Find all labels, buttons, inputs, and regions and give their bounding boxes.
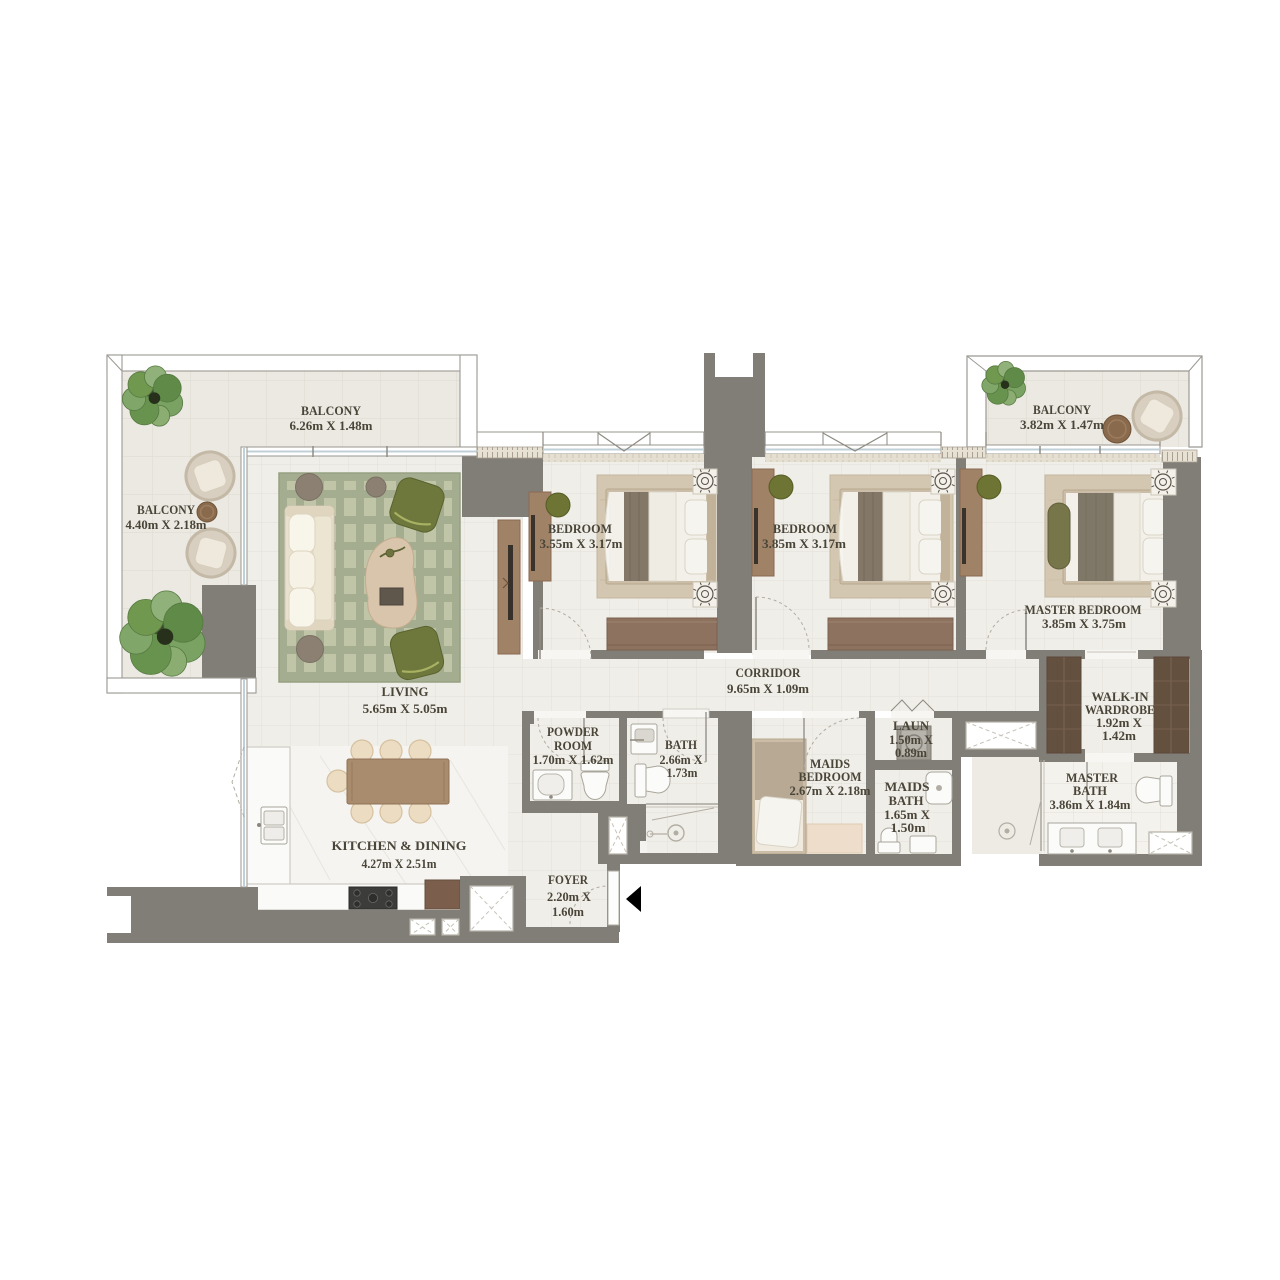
svg-text:BATH: BATH [1073,783,1107,798]
svg-text:MASTER BEDROOM: MASTER BEDROOM [1025,602,1142,617]
svg-text:BATH: BATH [665,737,697,752]
svg-text:BEDROOM: BEDROOM [773,521,837,536]
svg-text:POWDER: POWDER [547,724,600,739]
svg-text:9.65m X 1.09m: 9.65m X 1.09m [727,681,809,696]
svg-text:KITCHEN & DINING: KITCHEN & DINING [332,838,467,853]
svg-text:CORRIDOR: CORRIDOR [736,665,802,680]
svg-text:3.86m X 1.84m: 3.86m X 1.84m [1050,797,1131,812]
svg-text:BALCONY: BALCONY [1033,402,1092,417]
svg-text:3.85m X 3.17m: 3.85m X 3.17m [762,536,846,551]
svg-text:5.65m X 5.05m: 5.65m X 5.05m [363,701,448,716]
svg-text:1.42m: 1.42m [1102,728,1136,743]
svg-text:0.89m: 0.89m [895,745,927,760]
svg-text:1.70m X 1.62m: 1.70m X 1.62m [533,752,614,767]
svg-text:1.50m: 1.50m [891,820,926,835]
svg-text:3.55m X 3.17m: 3.55m X 3.17m [540,536,623,551]
svg-text:2.20m X: 2.20m X [547,889,592,904]
svg-text:LAUN: LAUN [893,718,930,733]
svg-text:ROOM: ROOM [554,738,592,753]
svg-text:6.26m X 1.48m: 6.26m X 1.48m [290,418,373,433]
svg-text:MAIDS: MAIDS [885,779,930,794]
svg-text:3.85m X 3.75m: 3.85m X 3.75m [1042,616,1126,631]
svg-text:1.60m: 1.60m [552,904,584,919]
svg-text:BALCONY: BALCONY [301,403,362,418]
svg-text:2.67m X 2.18m: 2.67m X 2.18m [790,783,871,798]
svg-text:BEDROOM: BEDROOM [548,521,612,536]
svg-text:3.82m X 1.47m: 3.82m X 1.47m [1020,417,1104,432]
svg-text:LIVING: LIVING [382,684,429,699]
svg-text:BALCONY: BALCONY [137,502,196,517]
svg-text:1.73m: 1.73m [667,765,698,780]
svg-text:BEDROOM: BEDROOM [799,769,862,784]
svg-text:BATH: BATH [889,793,924,808]
svg-text:4.27m X 2.51m: 4.27m X 2.51m [362,856,437,871]
svg-text:4.40m X 2.18m: 4.40m X 2.18m [126,517,207,532]
svg-text:FOYER: FOYER [548,872,589,887]
